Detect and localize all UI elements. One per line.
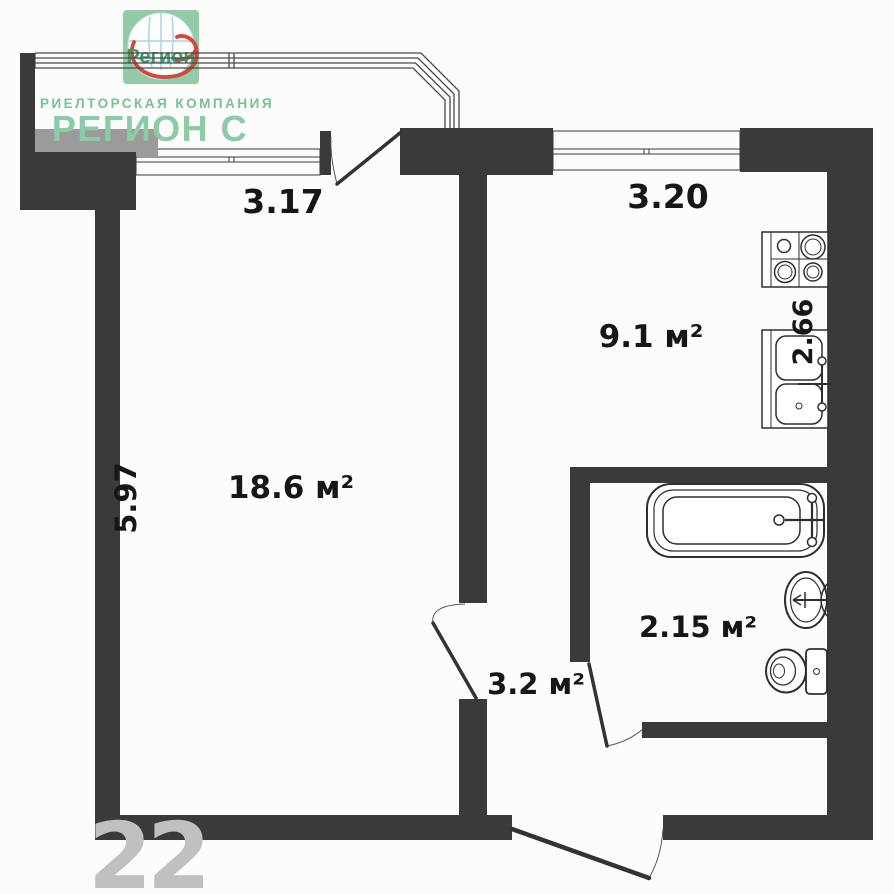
brand-name: РЕГИОН С bbox=[52, 108, 248, 149]
wall-segment bbox=[663, 815, 873, 840]
toilet-icon bbox=[766, 649, 827, 694]
stove-icon bbox=[762, 232, 828, 287]
wall-segment bbox=[400, 128, 553, 175]
wall-segment bbox=[570, 467, 827, 483]
bathroom-area-label: 2.15 м² bbox=[639, 610, 757, 644]
floor-plan: Регион bbox=[0, 0, 894, 894]
dimension-kitchen-depth: 2.66 bbox=[788, 299, 819, 366]
wall-segment bbox=[570, 467, 590, 662]
wall-segment bbox=[20, 152, 136, 210]
floor-plan-page: Регион bbox=[0, 0, 894, 894]
wall-segment bbox=[642, 722, 827, 738]
logo-wordmark: Регион bbox=[127, 46, 196, 68]
dimension-living-width: 3.17 bbox=[242, 182, 323, 221]
wall-segment bbox=[459, 175, 487, 603]
living-room-area-label: 18.6 м² bbox=[228, 470, 354, 506]
dimension-living-depth: 5.97 bbox=[109, 462, 143, 534]
washbasin-icon bbox=[785, 572, 827, 628]
wall-segment bbox=[827, 128, 873, 840]
wall-segment bbox=[320, 131, 331, 175]
bathtub-icon bbox=[647, 484, 824, 557]
agency-logo: Регион bbox=[123, 10, 199, 84]
kitchen-area-label: 9.1 м² bbox=[599, 319, 704, 355]
dimension-kitchen-width: 3.20 bbox=[627, 177, 708, 216]
wall-segment bbox=[20, 53, 35, 153]
watermark-text: 22 bbox=[88, 803, 206, 894]
hallway-area-label: 3.2 м² bbox=[487, 667, 585, 701]
wall-segment bbox=[459, 699, 487, 820]
